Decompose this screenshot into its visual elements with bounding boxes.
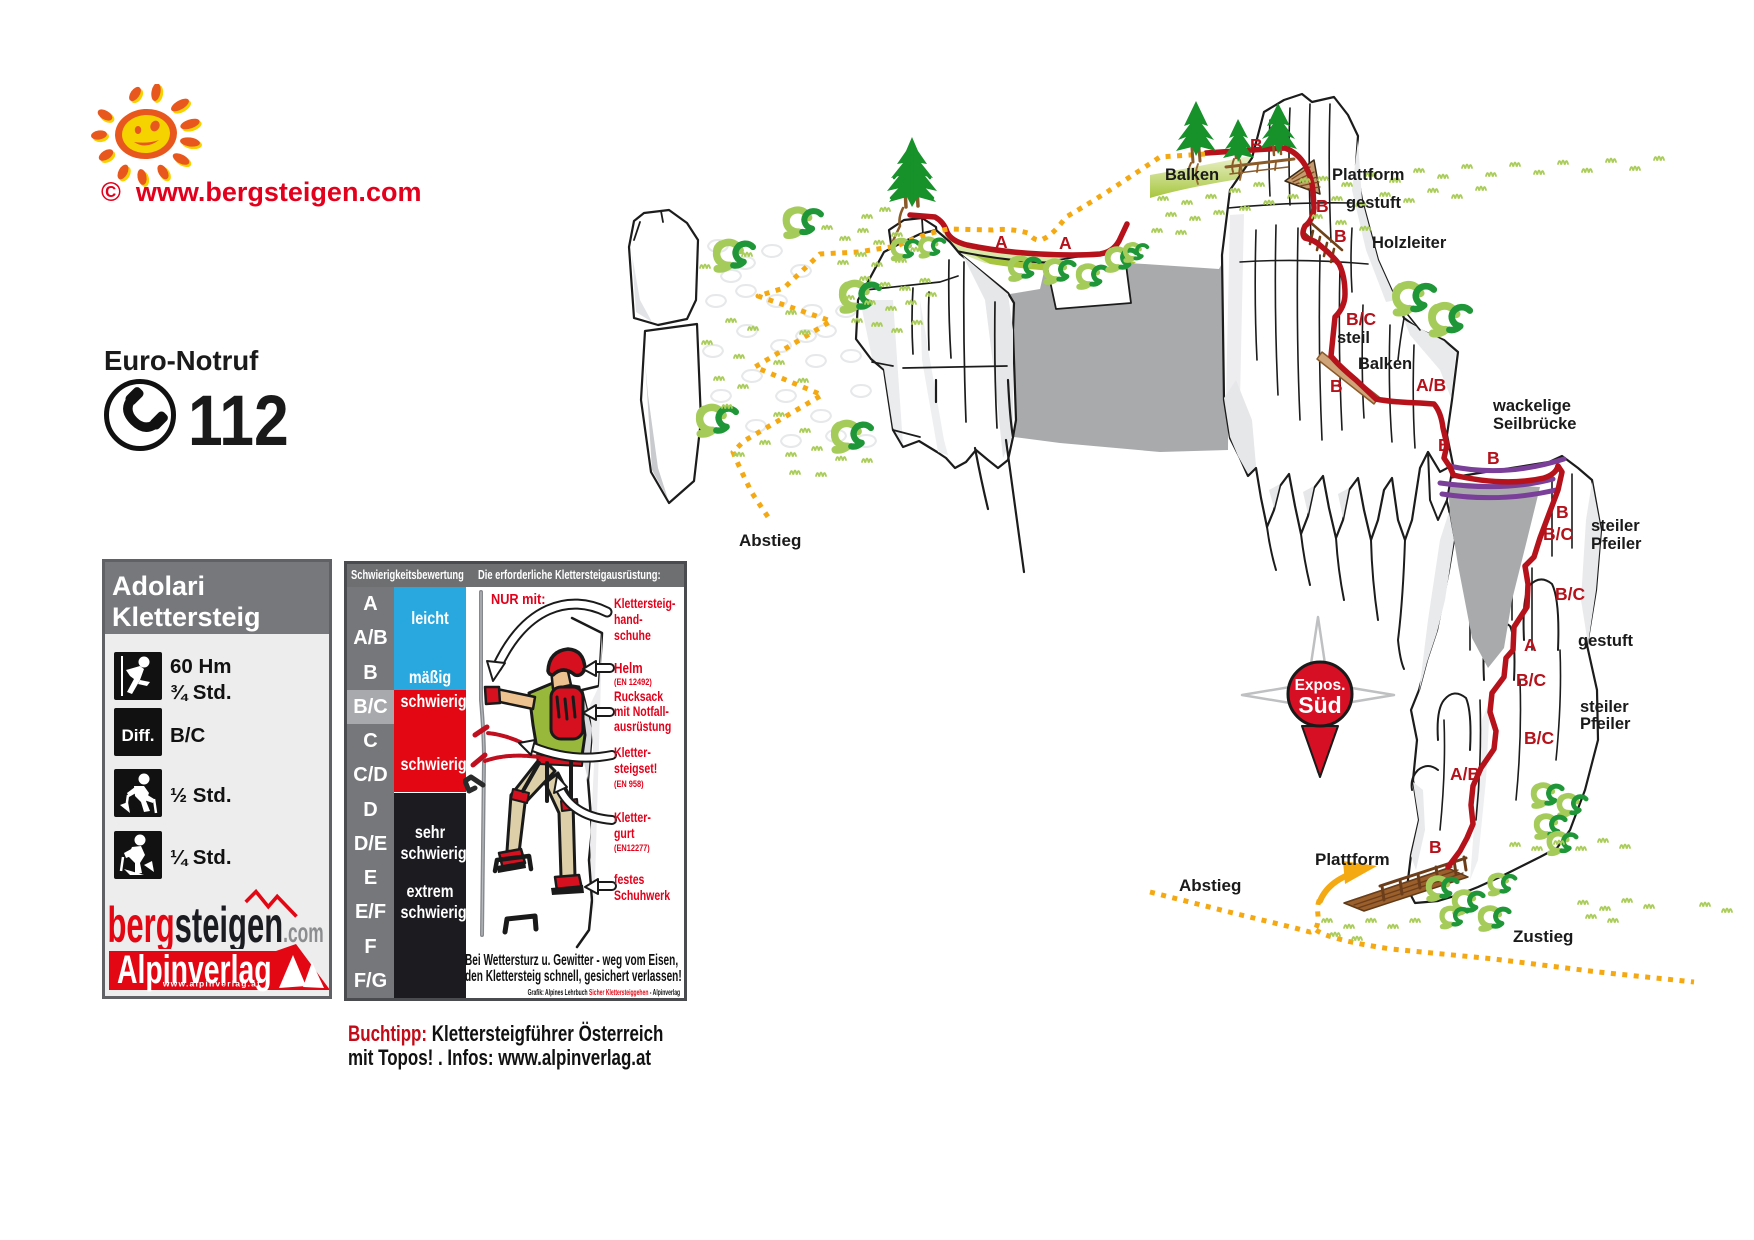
svg-text:B: B — [1429, 837, 1442, 857]
svg-text:Plattform: Plattform — [1315, 850, 1390, 869]
svg-text:Abstieg: Abstieg — [1179, 876, 1241, 895]
svg-text:A/B: A/B — [1450, 764, 1480, 784]
svg-text:B: B — [1438, 435, 1451, 455]
svg-text:Abstieg: Abstieg — [739, 531, 801, 550]
svg-text:Süd: Süd — [1298, 692, 1341, 718]
svg-text:B/C: B/C — [1555, 584, 1586, 604]
svg-text:steil: steil — [1337, 329, 1370, 347]
svg-text:B: B — [1316, 196, 1329, 216]
svg-text:Zustieg: Zustieg — [1513, 927, 1573, 946]
svg-text:B/C: B/C — [1346, 309, 1377, 329]
svg-text:Holzleiter: Holzleiter — [1372, 234, 1447, 252]
svg-text:B: B — [1487, 448, 1500, 468]
svg-text:B/C: B/C — [1524, 728, 1555, 748]
svg-text:A: A — [1059, 233, 1072, 253]
svg-text:B: B — [1334, 226, 1347, 246]
svg-text:B/C: B/C — [1516, 670, 1547, 690]
svg-text:gestuft: gestuft — [1346, 194, 1402, 212]
svg-text:steiler: steiler — [1580, 698, 1629, 716]
svg-text:steiler: steiler — [1591, 517, 1640, 535]
svg-text:B: B — [1250, 135, 1263, 155]
svg-text:B: B — [1330, 376, 1343, 396]
svg-text:A/B: A/B — [1416, 375, 1446, 395]
svg-text:Pfeiler: Pfeiler — [1580, 715, 1631, 733]
svg-text:Pfeiler: Pfeiler — [1591, 535, 1642, 553]
svg-text:Balken: Balken — [1165, 166, 1219, 184]
svg-text:Balken: Balken — [1358, 355, 1412, 373]
svg-text:B/C: B/C — [1543, 524, 1574, 544]
svg-text:Seilbrücke: Seilbrücke — [1493, 415, 1576, 433]
svg-text:A: A — [1524, 635, 1537, 655]
svg-text:A: A — [995, 232, 1008, 252]
svg-text:B: B — [1556, 502, 1569, 522]
svg-text:gestuft: gestuft — [1578, 632, 1634, 650]
svg-text:Plattform: Plattform — [1332, 166, 1404, 184]
svg-text:wackelige: wackelige — [1492, 397, 1571, 415]
